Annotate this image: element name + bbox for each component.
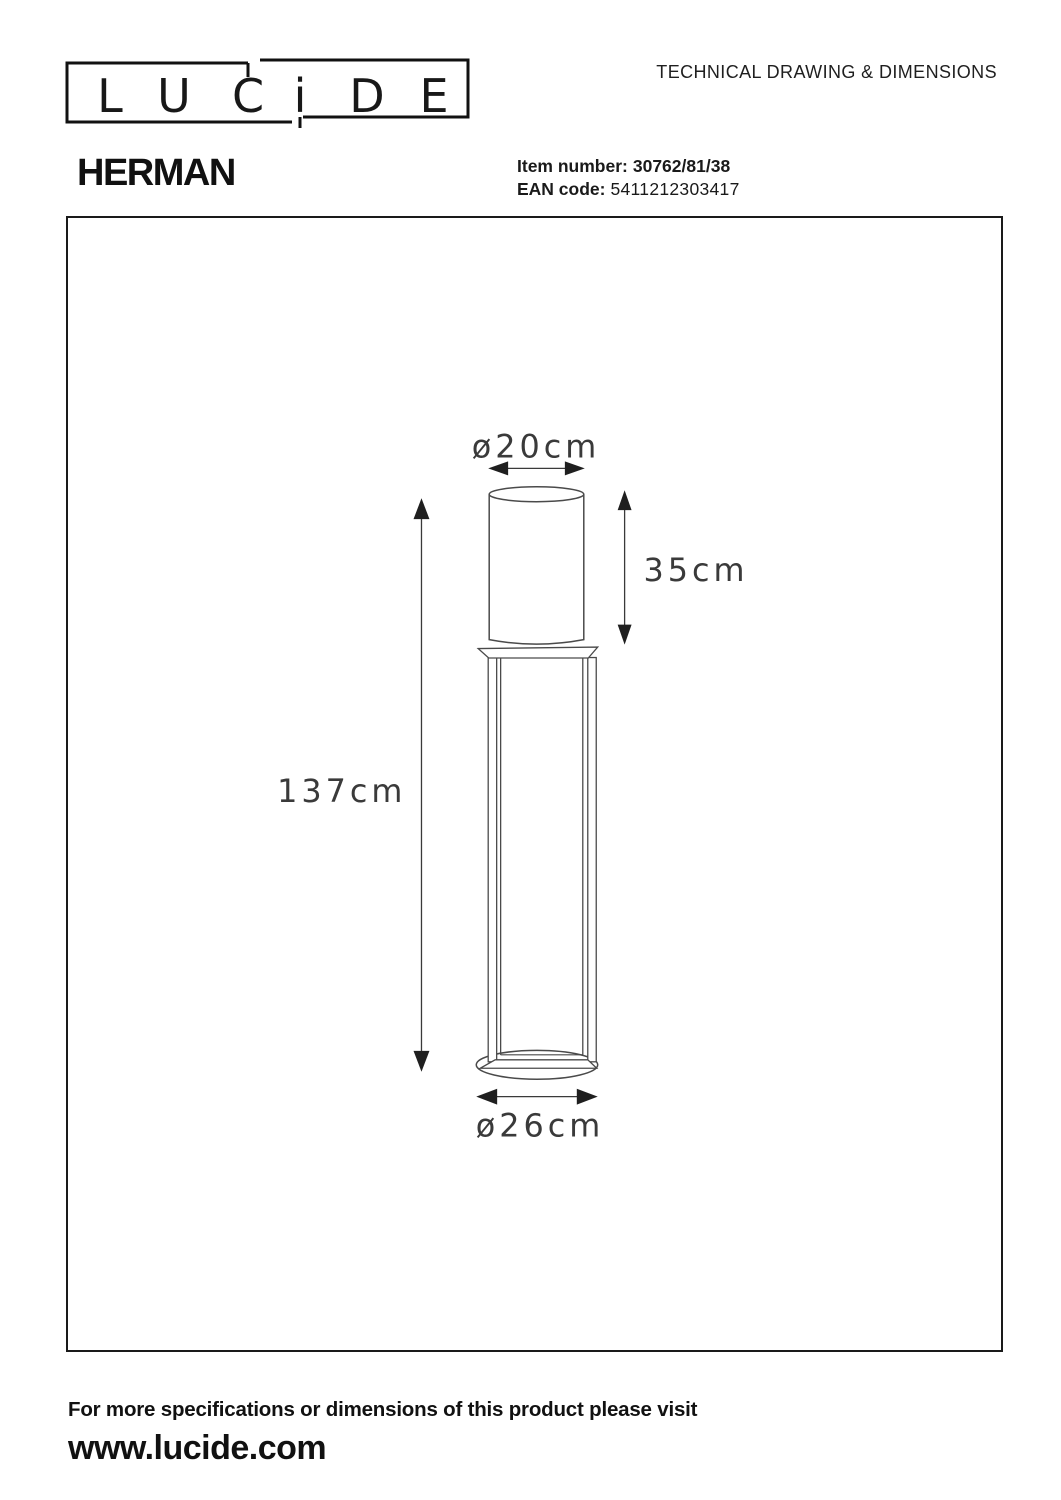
arrow-total-height <box>414 498 430 1072</box>
technical-drawing-page: L U C i D E TECHNICAL DRAWING & DIMENSIO… <box>0 0 1061 1500</box>
logo-frame <box>67 60 468 128</box>
ean-label: EAN code: <box>517 179 605 199</box>
arrow-base-diameter <box>476 1089 597 1105</box>
drawing-box: ø20cm 35cm <box>66 216 1003 1352</box>
website-text: www.lucide.com <box>68 1429 697 1468</box>
ean-value: 5411212303417 <box>610 179 739 199</box>
product-name: HERMAN <box>77 152 235 195</box>
stand-frame <box>478 647 597 1068</box>
ean-row: EAN code:5411212303417 <box>517 178 740 201</box>
logo-letter: U <box>157 69 191 123</box>
item-number-row: Item number:30762/81/38 <box>517 155 740 178</box>
label-shade-height: 35cm <box>644 551 749 589</box>
label-top-diameter: ø20cm <box>472 427 601 465</box>
logo-letter: i <box>294 69 307 123</box>
doc-title: TECHNICAL DRAWING & DIMENSIONS <box>656 62 997 83</box>
arrow-shade-height <box>618 490 632 644</box>
footer: For more specifications or dimensions of… <box>68 1398 697 1468</box>
logo-letter: D <box>349 69 384 123</box>
footer-note: For more specifications or dimensions of… <box>68 1398 697 1422</box>
label-base-diameter: ø26cm <box>476 1106 604 1144</box>
product-info-block: Item number:30762/81/38 EAN code:5411212… <box>517 155 740 201</box>
logo-letters: L U C i D E <box>97 69 448 123</box>
lamp-technical-drawing: ø20cm 35cm <box>68 218 1001 1350</box>
item-number-label: Item number: <box>517 156 628 176</box>
logo-letter: C <box>232 69 264 123</box>
item-number-value: 30762/81/38 <box>633 156 730 176</box>
shade-cylinder <box>489 487 584 644</box>
logo-letter: L <box>97 69 123 123</box>
logo-letter: E <box>419 69 448 123</box>
lucide-logo: L U C i D E <box>60 55 475 133</box>
label-total-height: 137cm <box>277 772 406 810</box>
